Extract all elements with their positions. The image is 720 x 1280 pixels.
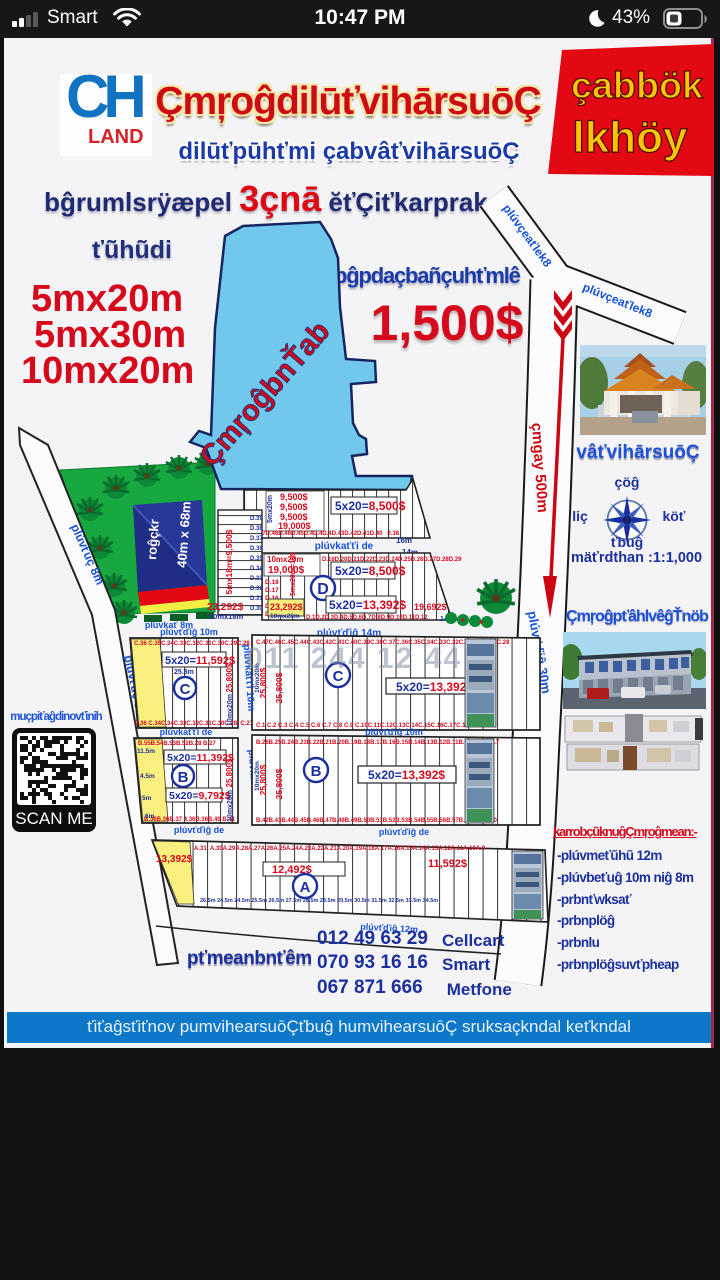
svg-text:B.55B.54B.53B.52B.28 B.27: B.55B.54B.53B.52B.28 B.27 <box>138 741 216 747</box>
svg-text:C: C <box>180 681 191 698</box>
svg-text:plúvťďiĝ de: plúvťďiĝ de <box>174 825 224 835</box>
svg-text:A: A <box>300 879 311 896</box>
svg-text:25.8m: 25.8m <box>174 669 194 676</box>
svg-text:11.5m: 11.5m <box>137 748 155 755</box>
svg-text:B.36B.36B.37 4.36B.36B.40 B.41: B.36B.36B.37 4.36B.36B.40 B.41 <box>144 817 236 823</box>
svg-text:B: B <box>178 769 189 786</box>
svg-text:B.42B.43B.44B.45B.46B.47B.48B.: B.42B.43B.44B.45B.46B.47B.48B.49B.50B.51… <box>256 818 497 824</box>
svg-text:plúvkaťťi de: plúvkaťťi de <box>160 727 213 737</box>
svg-text:5x20=13,392$: 5x20=13,392$ <box>368 768 445 782</box>
svg-text:10mx20m: 10mx20m <box>227 790 234 822</box>
svg-text:A.31 A.30A.29A.28A.27A.26A.25: A.31 A.30A.29A.28A.27A.26A.25A.24A.23A.2… <box>194 846 486 852</box>
svg-text:SCAN ME: SCAN ME <box>15 809 92 828</box>
svg-text:26.5m 24.5m 24.5m 25.5m 26.5m: 26.5m 24.5m 24.5m 25.5m 26.5m 27.5m 28.5… <box>200 898 438 904</box>
svg-text:25,800$: 25,800$ <box>225 663 234 692</box>
svg-text:5m: 5m <box>142 795 152 802</box>
svg-text:B.26B.25B.24B.23B.22B.21B.20B.: B.26B.25B.24B.23B.22B.21B.20B.19B.18B.17… <box>256 740 500 746</box>
svg-text:10mx20m: 10mx20m <box>227 694 234 726</box>
svg-text:5x20=9,792$: 5x20=9,792$ <box>169 790 231 802</box>
svg-text:B: B <box>311 763 322 780</box>
svg-text:25,800$: 25,800$ <box>274 672 284 703</box>
svg-text:25,800$: 25,800$ <box>225 758 234 787</box>
svg-text:6m: 6m <box>145 813 155 820</box>
svg-text:10mx20m: 10mx20m <box>254 761 261 791</box>
svg-text:13,392$: 13,392$ <box>156 854 193 865</box>
svg-text:5x20=11,392$: 5x20=11,392$ <box>167 752 234 764</box>
svg-text:4.5m: 4.5m <box>140 773 155 780</box>
svg-text:plúvťďiĝ 10m: plúvťďiĝ 10m <box>160 627 218 637</box>
svg-text:plúvťďiĝ de: plúvťďiĝ de <box>379 827 429 837</box>
svg-text:011 244 12 44: 011 244 12 44 <box>246 642 462 675</box>
svg-text:11,592$: 11,592$ <box>428 858 467 870</box>
svg-text:25,800$: 25,800$ <box>274 768 284 799</box>
svg-text:5x20=13,392$: 5x20=13,392$ <box>396 680 473 694</box>
